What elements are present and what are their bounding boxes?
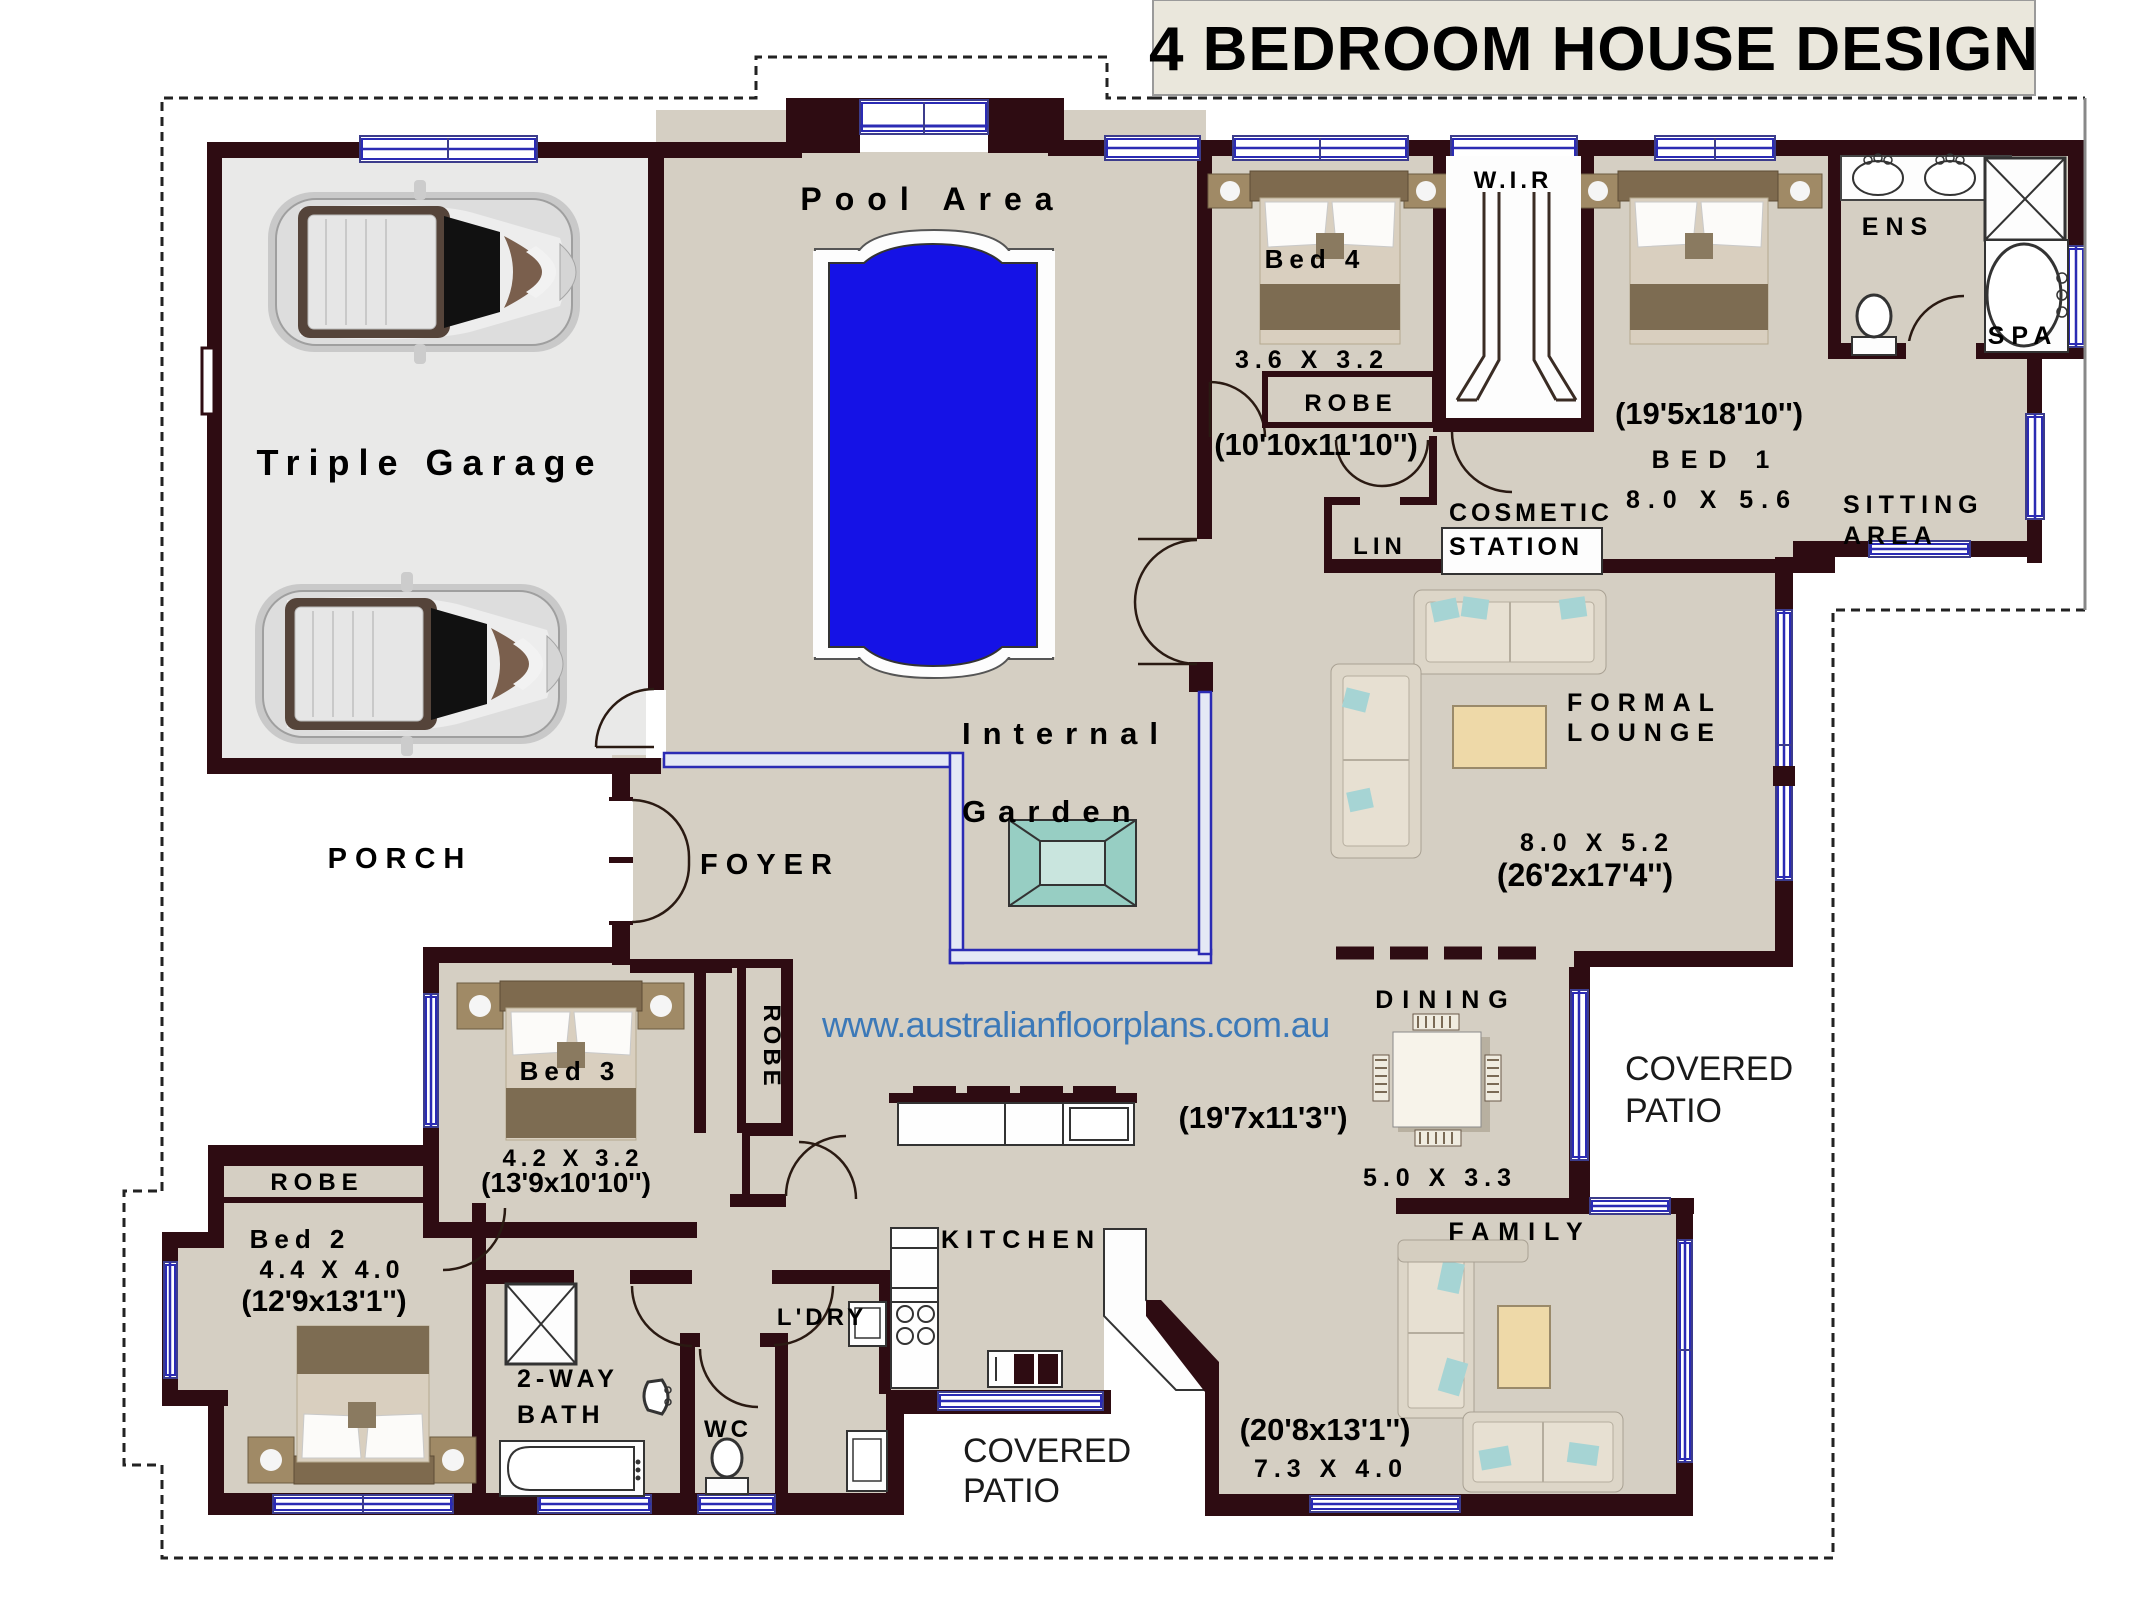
svg-text:SITTING: SITTING [1843,491,1984,519]
svg-text:BED 1: BED 1 [1652,446,1781,474]
svg-text:(26'2x17'4''): (26'2x17'4'') [1497,857,1673,893]
svg-text:WC: WC [704,1416,752,1443]
svg-text:7.3 X 4.0: 7.3 X 4.0 [1254,1455,1408,1483]
svg-text:W.I.R: W.I.R [1474,167,1553,194]
svg-text:www.australianfloorplans.com.a: www.australianfloorplans.com.au [821,1004,1330,1045]
svg-text:Internal: Internal [962,716,1170,751]
svg-text:5.0 X 3.3: 5.0 X 3.3 [1363,1164,1517,1192]
svg-text:8.0 X 5.2: 8.0 X 5.2 [1520,829,1674,857]
svg-text:FORMAL: FORMAL [1567,689,1722,717]
svg-text:DINING: DINING [1375,986,1517,1014]
svg-text:Pool Area: Pool Area [800,181,1065,217]
svg-text:Garden: Garden [962,794,1143,829]
svg-text:ROBE: ROBE [758,1004,785,1089]
svg-text:COVERED: COVERED [963,1432,1131,1470]
svg-text:AREA: AREA [1843,522,1938,550]
svg-text:8.0 X 5.6: 8.0 X 5.6 [1626,486,1798,514]
svg-text:Bed 2: Bed 2 [250,1224,351,1254]
svg-text:BATH: BATH [517,1401,605,1429]
svg-text:Bed 4: Bed 4 [1265,244,1366,274]
svg-text:4.4 X 4.0: 4.4 X 4.0 [259,1256,404,1284]
svg-text:FOYER: FOYER [700,849,840,881]
svg-text:(13'9x10'10''): (13'9x10'10'') [481,1167,651,1198]
svg-text:STATION: STATION [1449,533,1583,561]
svg-text:Triple Garage: Triple Garage [256,442,603,483]
svg-text:LOUNGE: LOUNGE [1567,719,1722,747]
svg-text:PORCH: PORCH [328,843,473,875]
svg-text:2-WAY: 2-WAY [517,1365,619,1393]
svg-text:ROBE: ROBE [1304,390,1397,417]
svg-text:PATIO: PATIO [1625,1092,1722,1130]
svg-text:(20'8x13'1''): (20'8x13'1'') [1240,1412,1411,1447]
svg-text:LIN: LIN [1353,533,1407,560]
svg-text:(12'9x13'1''): (12'9x13'1'') [241,1285,406,1318]
svg-text:COVERED: COVERED [1625,1050,1793,1088]
svg-text:PATIO: PATIO [963,1472,1060,1510]
svg-text:Bed 3: Bed 3 [520,1056,621,1086]
svg-text:FAMILY: FAMILY [1448,1218,1591,1246]
svg-text:L'DRY: L'DRY [777,1304,867,1331]
svg-text:SPA: SPA [1988,322,2059,350]
svg-text:ROBE: ROBE [270,1169,363,1196]
svg-text:COSMETIC: COSMETIC [1449,499,1613,527]
svg-text:(19'7x11'3''): (19'7x11'3'') [1178,1100,1347,1135]
svg-text:ENS: ENS [1862,213,1934,241]
svg-text:(10'10x11'10''): (10'10x11'10'') [1214,427,1418,462]
svg-text:3.6 X 3.2: 3.6 X 3.2 [1235,346,1389,374]
svg-text:4 BEDROOM HOUSE DESIGN: 4 BEDROOM HOUSE DESIGN [1149,15,2039,84]
svg-text:KITCHEN: KITCHEN [941,1226,1101,1254]
svg-text:(19'5x18'10''): (19'5x18'10'') [1615,396,1803,431]
